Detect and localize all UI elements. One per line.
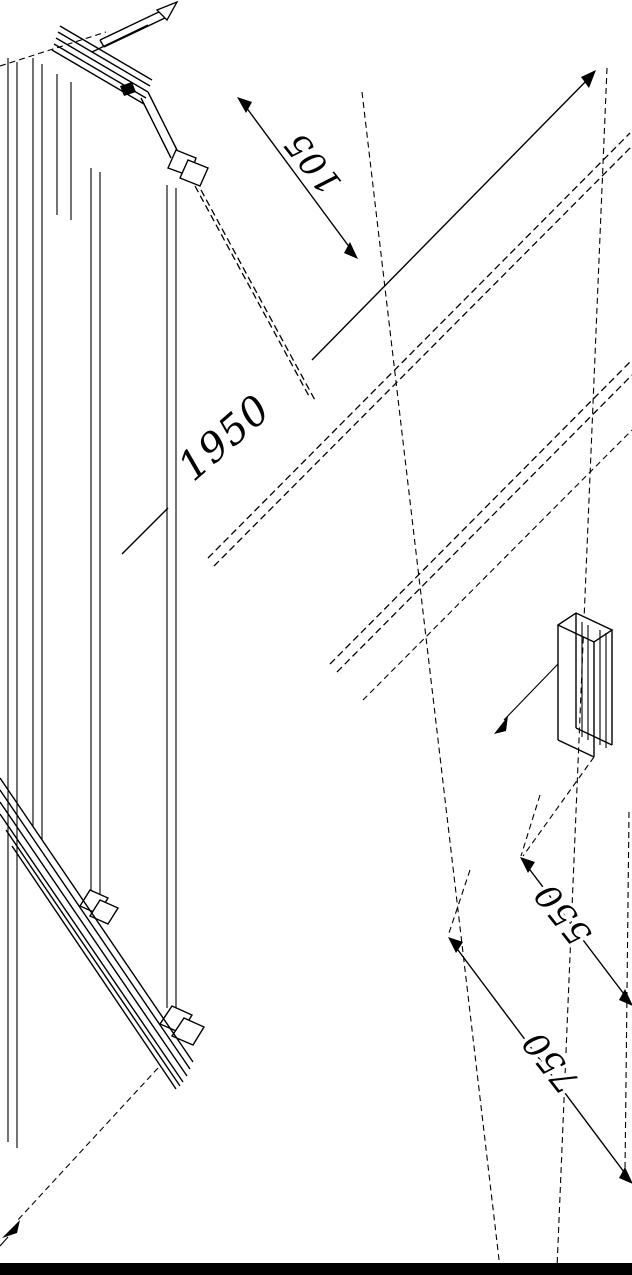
support-bar-edge xyxy=(92,25,148,52)
bracket-bottom-edge xyxy=(558,740,594,757)
rail-edge xyxy=(0,778,193,1062)
support-bar-edge xyxy=(104,17,167,47)
hinge-clamp-middle xyxy=(80,890,118,924)
dimension-label-105: 105 xyxy=(277,124,350,202)
support-bar-edge xyxy=(100,10,163,40)
profile-edge xyxy=(56,38,148,92)
dimension-arrowhead-icon xyxy=(448,937,463,953)
dimension-label-750: 750 xyxy=(515,1023,588,1101)
wall-bracket-piece xyxy=(558,613,612,757)
extension-line xyxy=(521,795,540,856)
rail-edge xyxy=(12,846,176,1089)
extension-line xyxy=(448,870,470,936)
glass-top-edge xyxy=(195,186,310,398)
dimension-550: 550 xyxy=(520,857,632,1006)
glass-panel-edges xyxy=(8,58,176,1148)
return-panel-edge xyxy=(208,133,630,558)
bracket-top-face xyxy=(558,613,612,642)
rail-edge xyxy=(6,830,180,1086)
extension-line xyxy=(16,1068,158,1222)
dimension-arrowhead-icon xyxy=(344,242,358,259)
dimension-arrowhead-icon xyxy=(619,1167,632,1184)
return-panel-edge xyxy=(214,146,632,566)
extension-tick xyxy=(0,1237,8,1246)
leader-arrow xyxy=(494,664,558,734)
profile-edge xyxy=(52,50,144,104)
dimension-105: 105 xyxy=(237,97,358,259)
dimension-arrowhead-icon xyxy=(619,989,632,1006)
glass-top-edge xyxy=(201,190,316,402)
extension-line xyxy=(523,757,594,856)
dimension-label-550: 550 xyxy=(527,875,600,953)
dimension-arrowhead-icon xyxy=(520,857,535,873)
wall-top-edge-line xyxy=(0,32,106,66)
dimension-line xyxy=(122,508,168,554)
support-bar-arrow-icon xyxy=(157,2,177,20)
dimension-extension-bottom-left xyxy=(0,1068,158,1246)
bottom-rail xyxy=(0,778,193,1089)
leader-arrowhead-icon xyxy=(494,716,508,734)
dimension-label-1950: 1950 xyxy=(169,386,279,490)
extension-line xyxy=(362,92,500,1268)
hinge-clamp-top xyxy=(168,150,208,186)
technical-drawing-canvas: 105 1950 550 750 xyxy=(0,0,632,1275)
profile-edge xyxy=(58,32,150,86)
dimension-line xyxy=(312,76,591,360)
leader-line xyxy=(504,664,558,720)
dimension-arrowhead-icon xyxy=(237,97,252,113)
hinge-clamp-bottom xyxy=(160,1006,204,1045)
profile-edge xyxy=(60,26,152,80)
dimension-arrowhead-icon xyxy=(581,70,596,88)
dimension-arrowhead-icon xyxy=(2,1220,20,1238)
dimension-1950: 1950 xyxy=(122,70,596,554)
rail-edge xyxy=(0,802,187,1076)
rail-edge xyxy=(0,790,190,1069)
footer-bar xyxy=(0,1263,632,1275)
support-bar xyxy=(92,2,177,52)
return-panel-edge xyxy=(363,430,632,700)
